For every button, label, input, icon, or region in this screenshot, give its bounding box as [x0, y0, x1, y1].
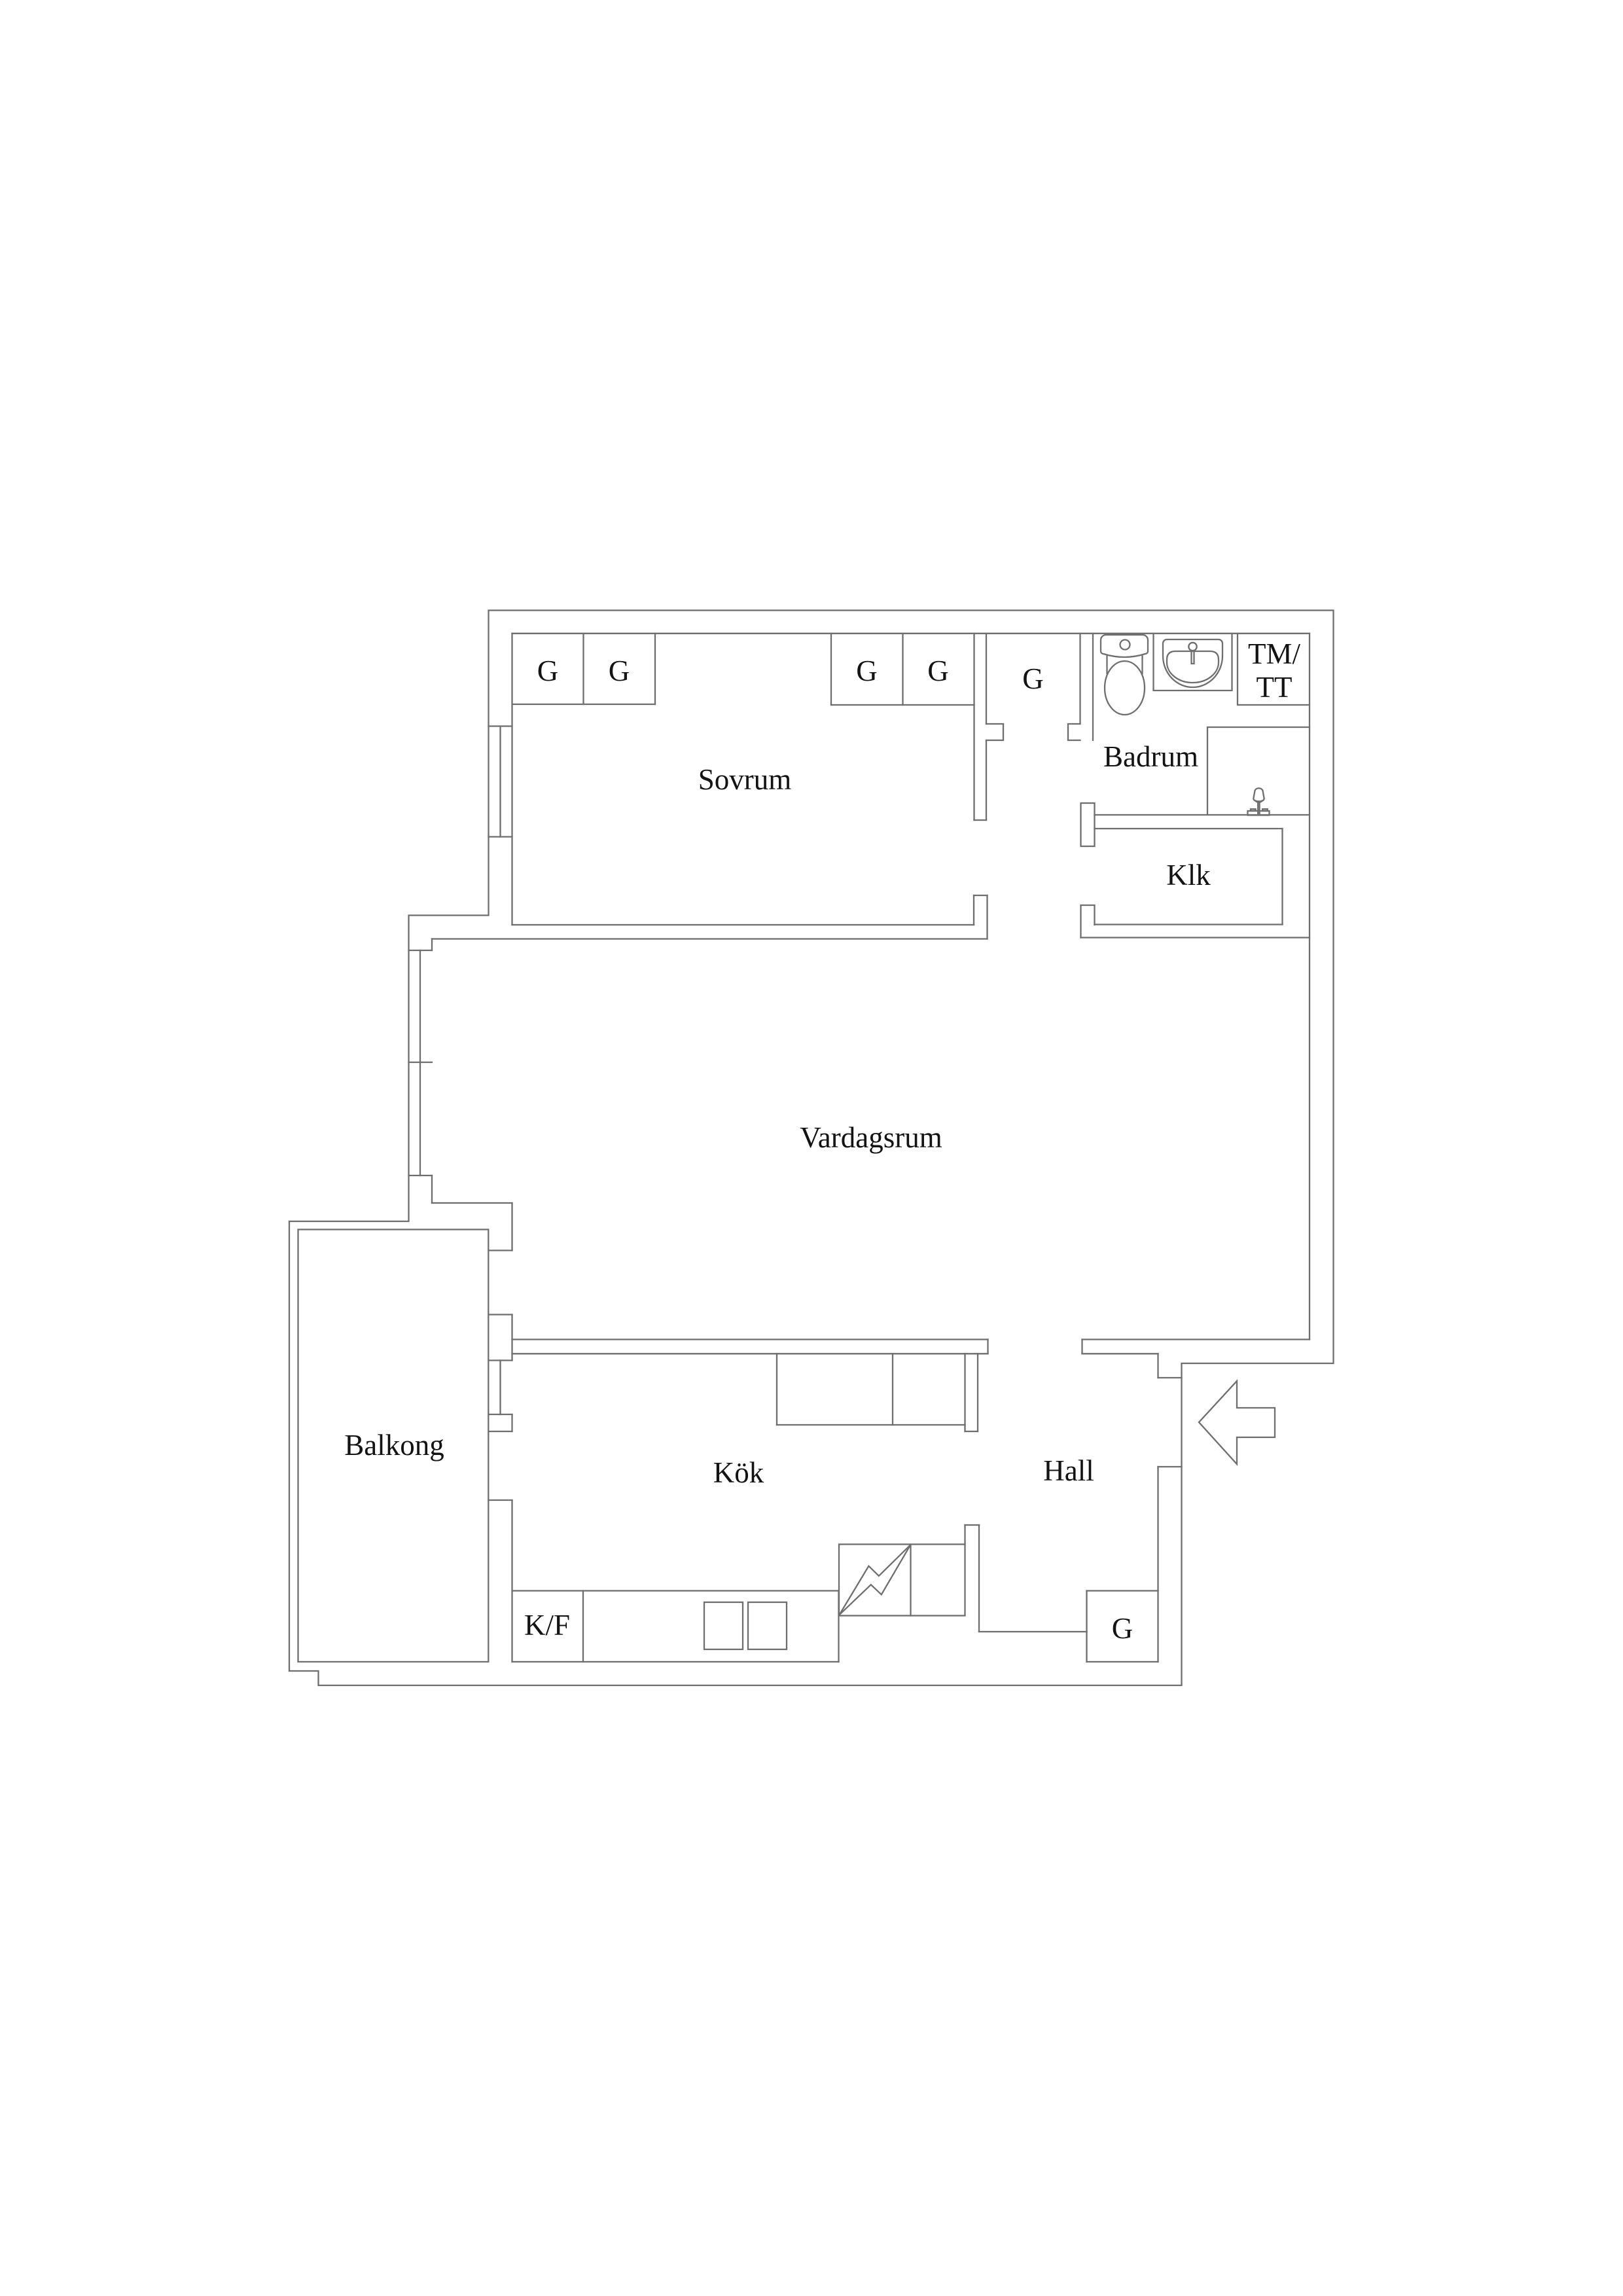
svg-text:Kök: Kök [713, 1456, 764, 1489]
svg-text:TT: TT [1257, 671, 1293, 704]
svg-text:G: G [537, 655, 559, 687]
svg-text:G: G [1022, 662, 1044, 695]
svg-text:Klk: Klk [1166, 859, 1211, 891]
svg-text:Hall: Hall [1043, 1454, 1094, 1487]
svg-text:TM/: TM/ [1248, 637, 1301, 670]
svg-text:G: G [1112, 1612, 1133, 1645]
svg-text:Vardagsrum: Vardagsrum [800, 1121, 942, 1154]
svg-text:Balkong: Balkong [344, 1429, 444, 1462]
svg-text:G: G [856, 655, 878, 687]
svg-text:G: G [609, 655, 630, 687]
svg-text:Badrum: Badrum [1103, 740, 1198, 773]
svg-text:G: G [927, 655, 949, 687]
svg-text:K/F: K/F [524, 1609, 570, 1641]
svg-text:Sovrum: Sovrum [698, 763, 792, 796]
